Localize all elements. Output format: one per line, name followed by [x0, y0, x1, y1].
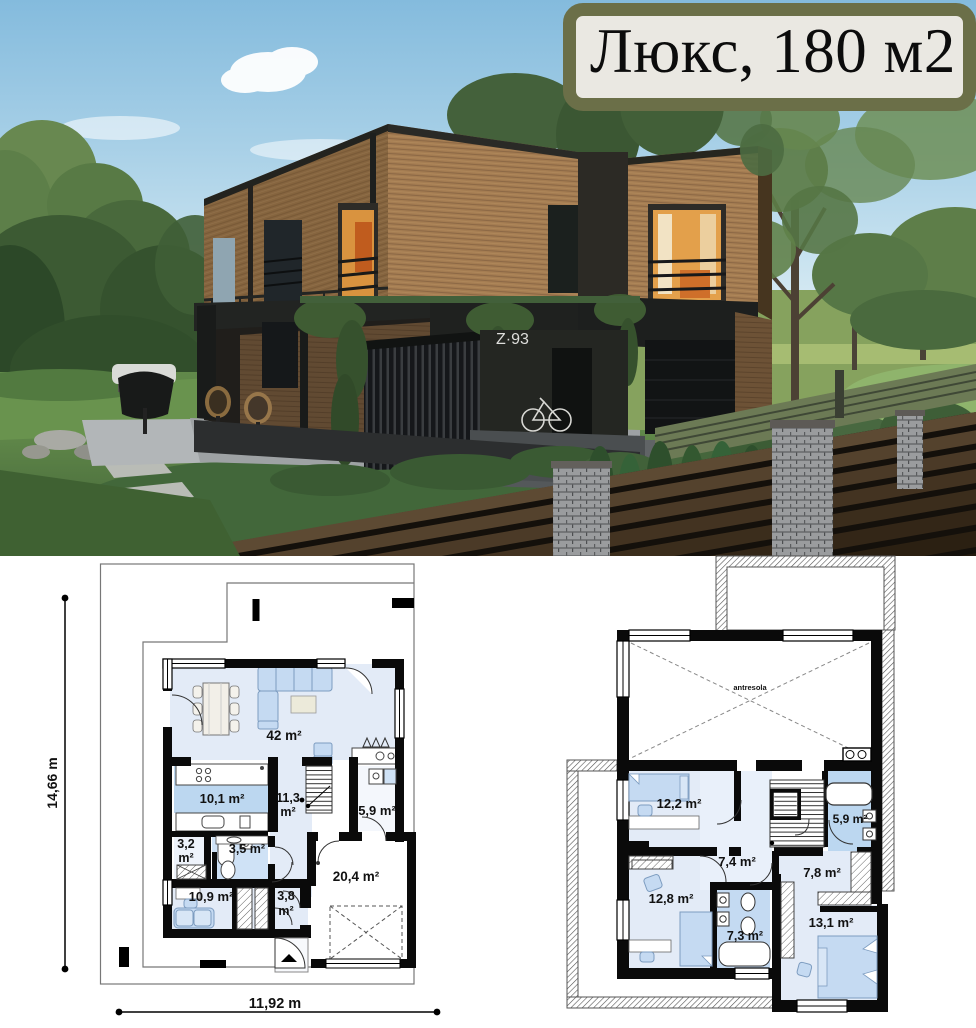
svg-text:11,3: 11,3 — [276, 791, 300, 805]
svg-text:Z·93: Z·93 — [496, 331, 529, 348]
svg-text:antresola: antresola — [733, 683, 767, 692]
svg-text:10,9 m²: 10,9 m² — [189, 889, 234, 904]
svg-text:5,9 m²: 5,9 m² — [833, 812, 868, 826]
svg-text:3,8: 3,8 — [277, 889, 294, 903]
svg-text:13,1 m²: 13,1 m² — [809, 915, 854, 930]
svg-text:5,9 m²: 5,9 m² — [358, 803, 396, 818]
svg-text:14,66 m: 14,66 m — [44, 757, 60, 808]
svg-text:3,2: 3,2 — [177, 837, 194, 851]
svg-text:12,8 m²: 12,8 m² — [649, 891, 694, 906]
svg-text:m²: m² — [178, 851, 193, 865]
svg-text:42 m²: 42 m² — [266, 728, 302, 743]
svg-text:10,1 m²: 10,1 m² — [200, 791, 245, 806]
svg-text:m²: m² — [278, 904, 293, 918]
svg-text:20,4 m²: 20,4 m² — [333, 869, 380, 884]
svg-text:7,3 m²: 7,3 m² — [727, 929, 763, 943]
svg-text:7,4 m²: 7,4 m² — [718, 854, 756, 869]
svg-text:3,5 m²: 3,5 m² — [229, 842, 265, 856]
svg-text:11,92 m: 11,92 m — [249, 996, 301, 1012]
svg-text:m²: m² — [280, 805, 295, 819]
svg-text:12,2 m²: 12,2 m² — [657, 796, 702, 811]
svg-text:7,8 m²: 7,8 m² — [803, 865, 841, 880]
